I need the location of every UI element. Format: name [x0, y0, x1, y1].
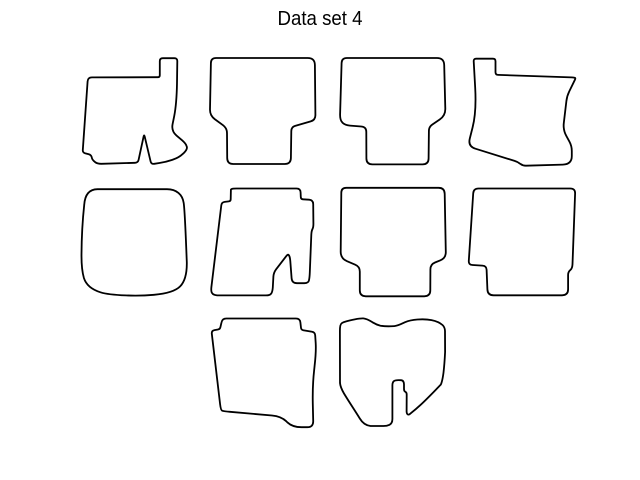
svg-text:Data set 4: Data set 4	[278, 7, 363, 30]
